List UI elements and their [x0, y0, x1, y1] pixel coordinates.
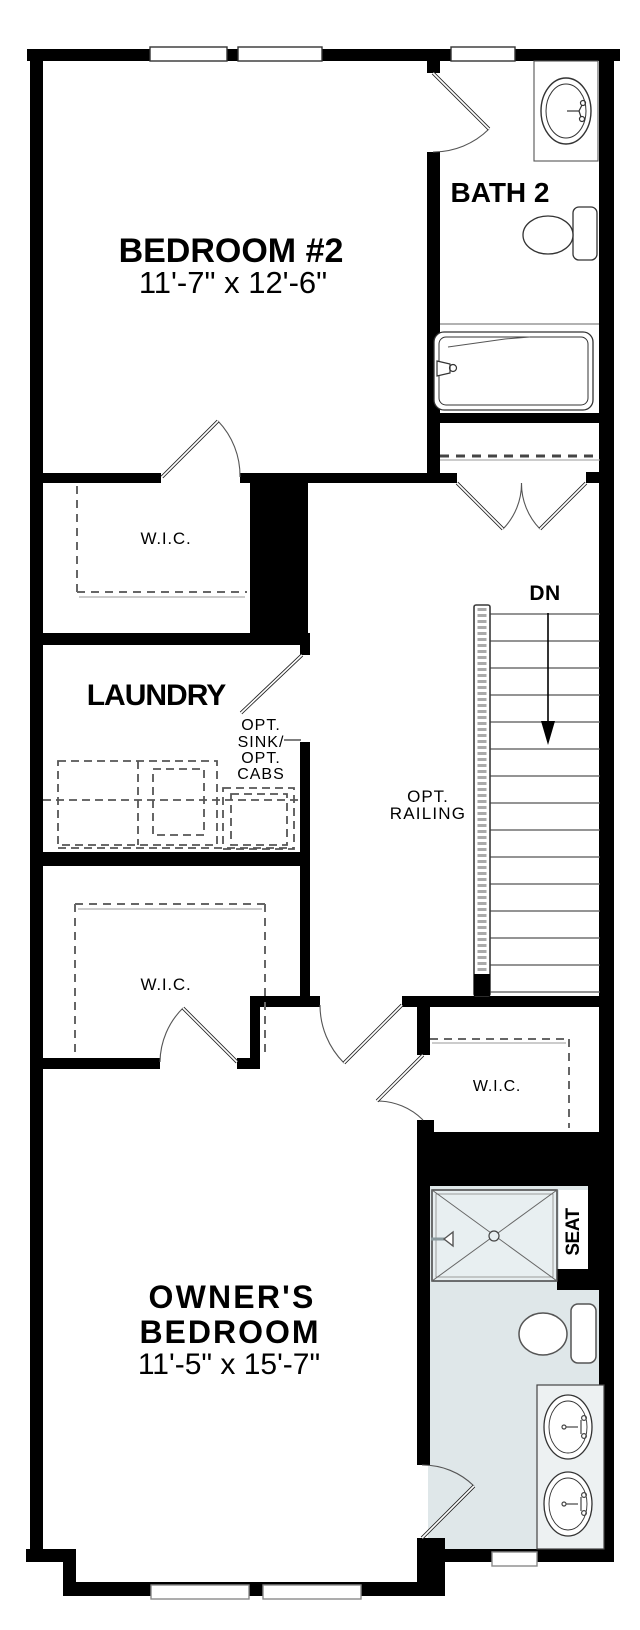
svg-text:DN: DN [529, 582, 560, 605]
svg-text:CABS: CABS [237, 766, 285, 783]
svg-text:BEDROOM: BEDROOM [139, 1314, 320, 1350]
svg-text:W.I.C.: W.I.C. [140, 529, 191, 548]
svg-text:OPT.: OPT. [241, 750, 281, 767]
svg-text:LAUNDRY: LAUNDRY [87, 679, 227, 712]
svg-text:SEAT: SEAT [563, 1207, 584, 1255]
svg-text:BATH 2: BATH 2 [450, 177, 549, 208]
svg-text:RAILING: RAILING [390, 804, 466, 823]
svg-text:11'-5" x 15'-7": 11'-5" x 15'-7" [138, 1348, 320, 1381]
svg-text:11'-7" x 12'-6": 11'-7" x 12'-6" [139, 265, 327, 300]
svg-text:SINK/: SINK/ [238, 734, 285, 751]
svg-text:W.I.C.: W.I.C. [140, 975, 191, 994]
svg-text:OPT.: OPT. [241, 717, 281, 734]
svg-text:W.I.C.: W.I.C. [473, 1078, 521, 1095]
svg-text:OWNER'S: OWNER'S [148, 1279, 315, 1315]
